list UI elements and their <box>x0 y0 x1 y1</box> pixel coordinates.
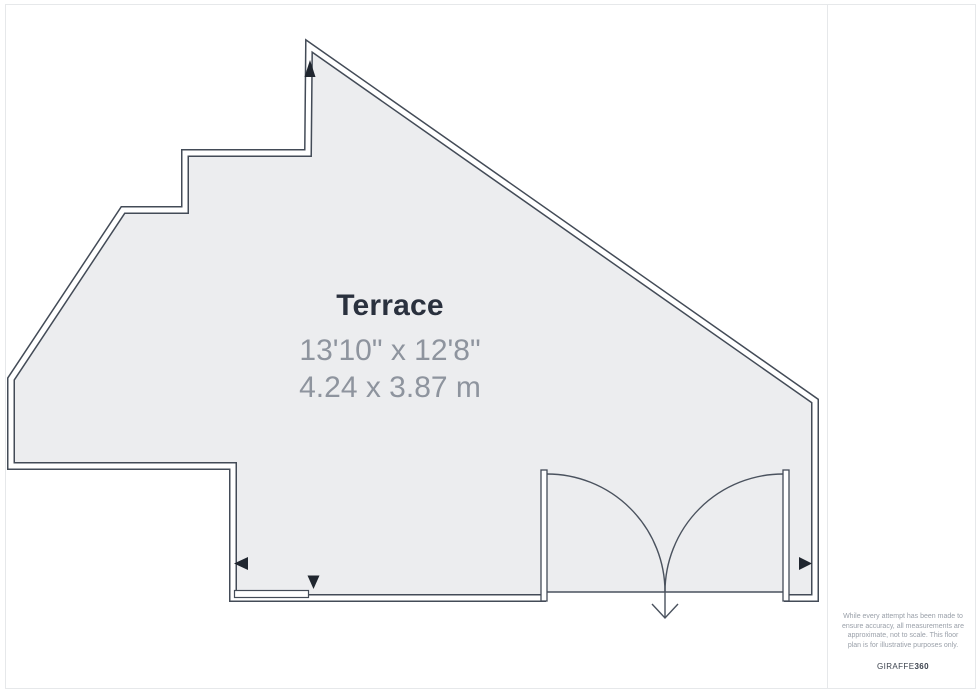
door-left-leaf <box>541 470 547 601</box>
disclaimer-line: plan is for illustrative purposes only. <box>833 641 973 651</box>
brand-name-bold: 360 <box>914 662 929 671</box>
door-right-leaf <box>783 470 789 601</box>
brand-name-regular: GIRAFFE <box>877 662 914 671</box>
floorplan-page: Terrace 13'10" x 12'8" 4.24 x 3.87 m Whi… <box>0 0 980 693</box>
window-segment <box>235 591 309 598</box>
giraffe360-logo: GIRAFFE360 <box>833 662 973 671</box>
disclaimer-line: approximate, not to scale. This floor <box>833 631 973 641</box>
disclaimer-line: While every attempt has been made to <box>833 612 973 622</box>
floorplan-drawing <box>0 0 980 693</box>
disclaimer-line: ensure accuracy, all measurements are <box>833 622 973 632</box>
disclaimer-note: While every attempt has been made to ens… <box>833 612 973 671</box>
terrace-floor <box>11 46 815 598</box>
